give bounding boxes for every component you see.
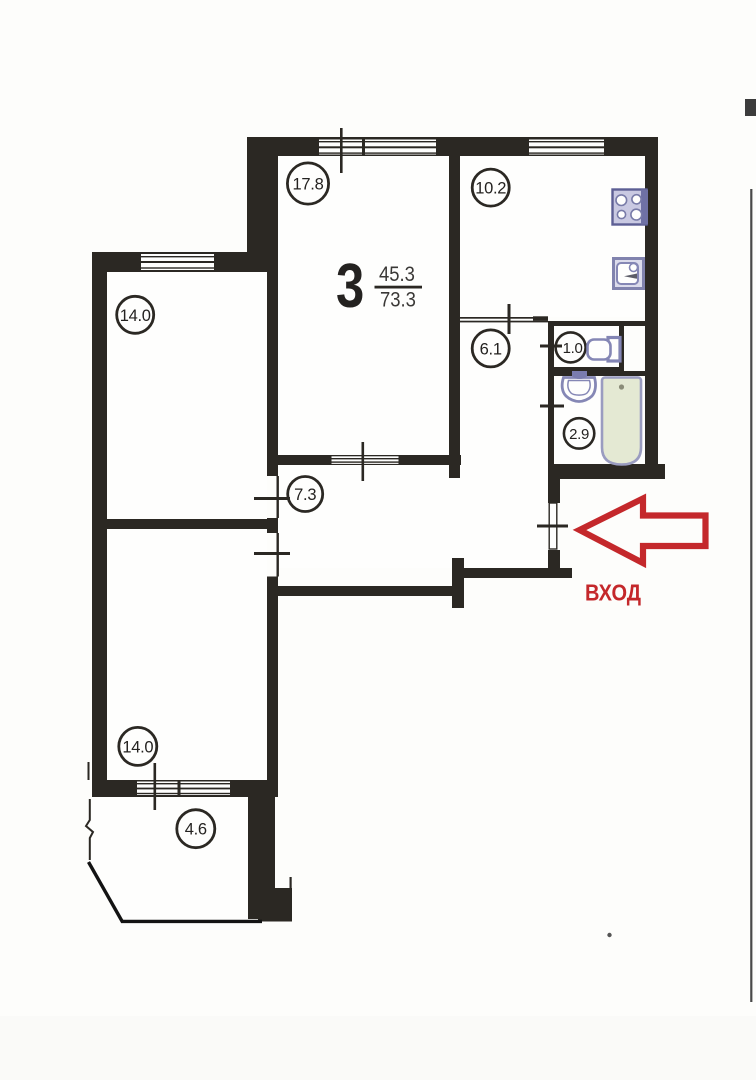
- svg-text:10.2: 10.2: [475, 180, 506, 198]
- svg-text:7.3: 7.3: [294, 486, 316, 504]
- svg-text:ВХОД: ВХОД: [585, 579, 641, 606]
- svg-text:3: 3: [336, 252, 364, 321]
- svg-text:45.3: 45.3: [379, 263, 415, 286]
- svg-text:1.0: 1.0: [563, 340, 583, 357]
- svg-text:73.3: 73.3: [380, 288, 416, 311]
- svg-text:17.8: 17.8: [293, 176, 324, 194]
- svg-text:4.6: 4.6: [185, 821, 207, 839]
- svg-text:14.0: 14.0: [120, 307, 151, 325]
- svg-text:6.1: 6.1: [480, 340, 502, 358]
- svg-text:14.0: 14.0: [122, 738, 153, 756]
- svg-text:2.9: 2.9: [569, 426, 589, 443]
